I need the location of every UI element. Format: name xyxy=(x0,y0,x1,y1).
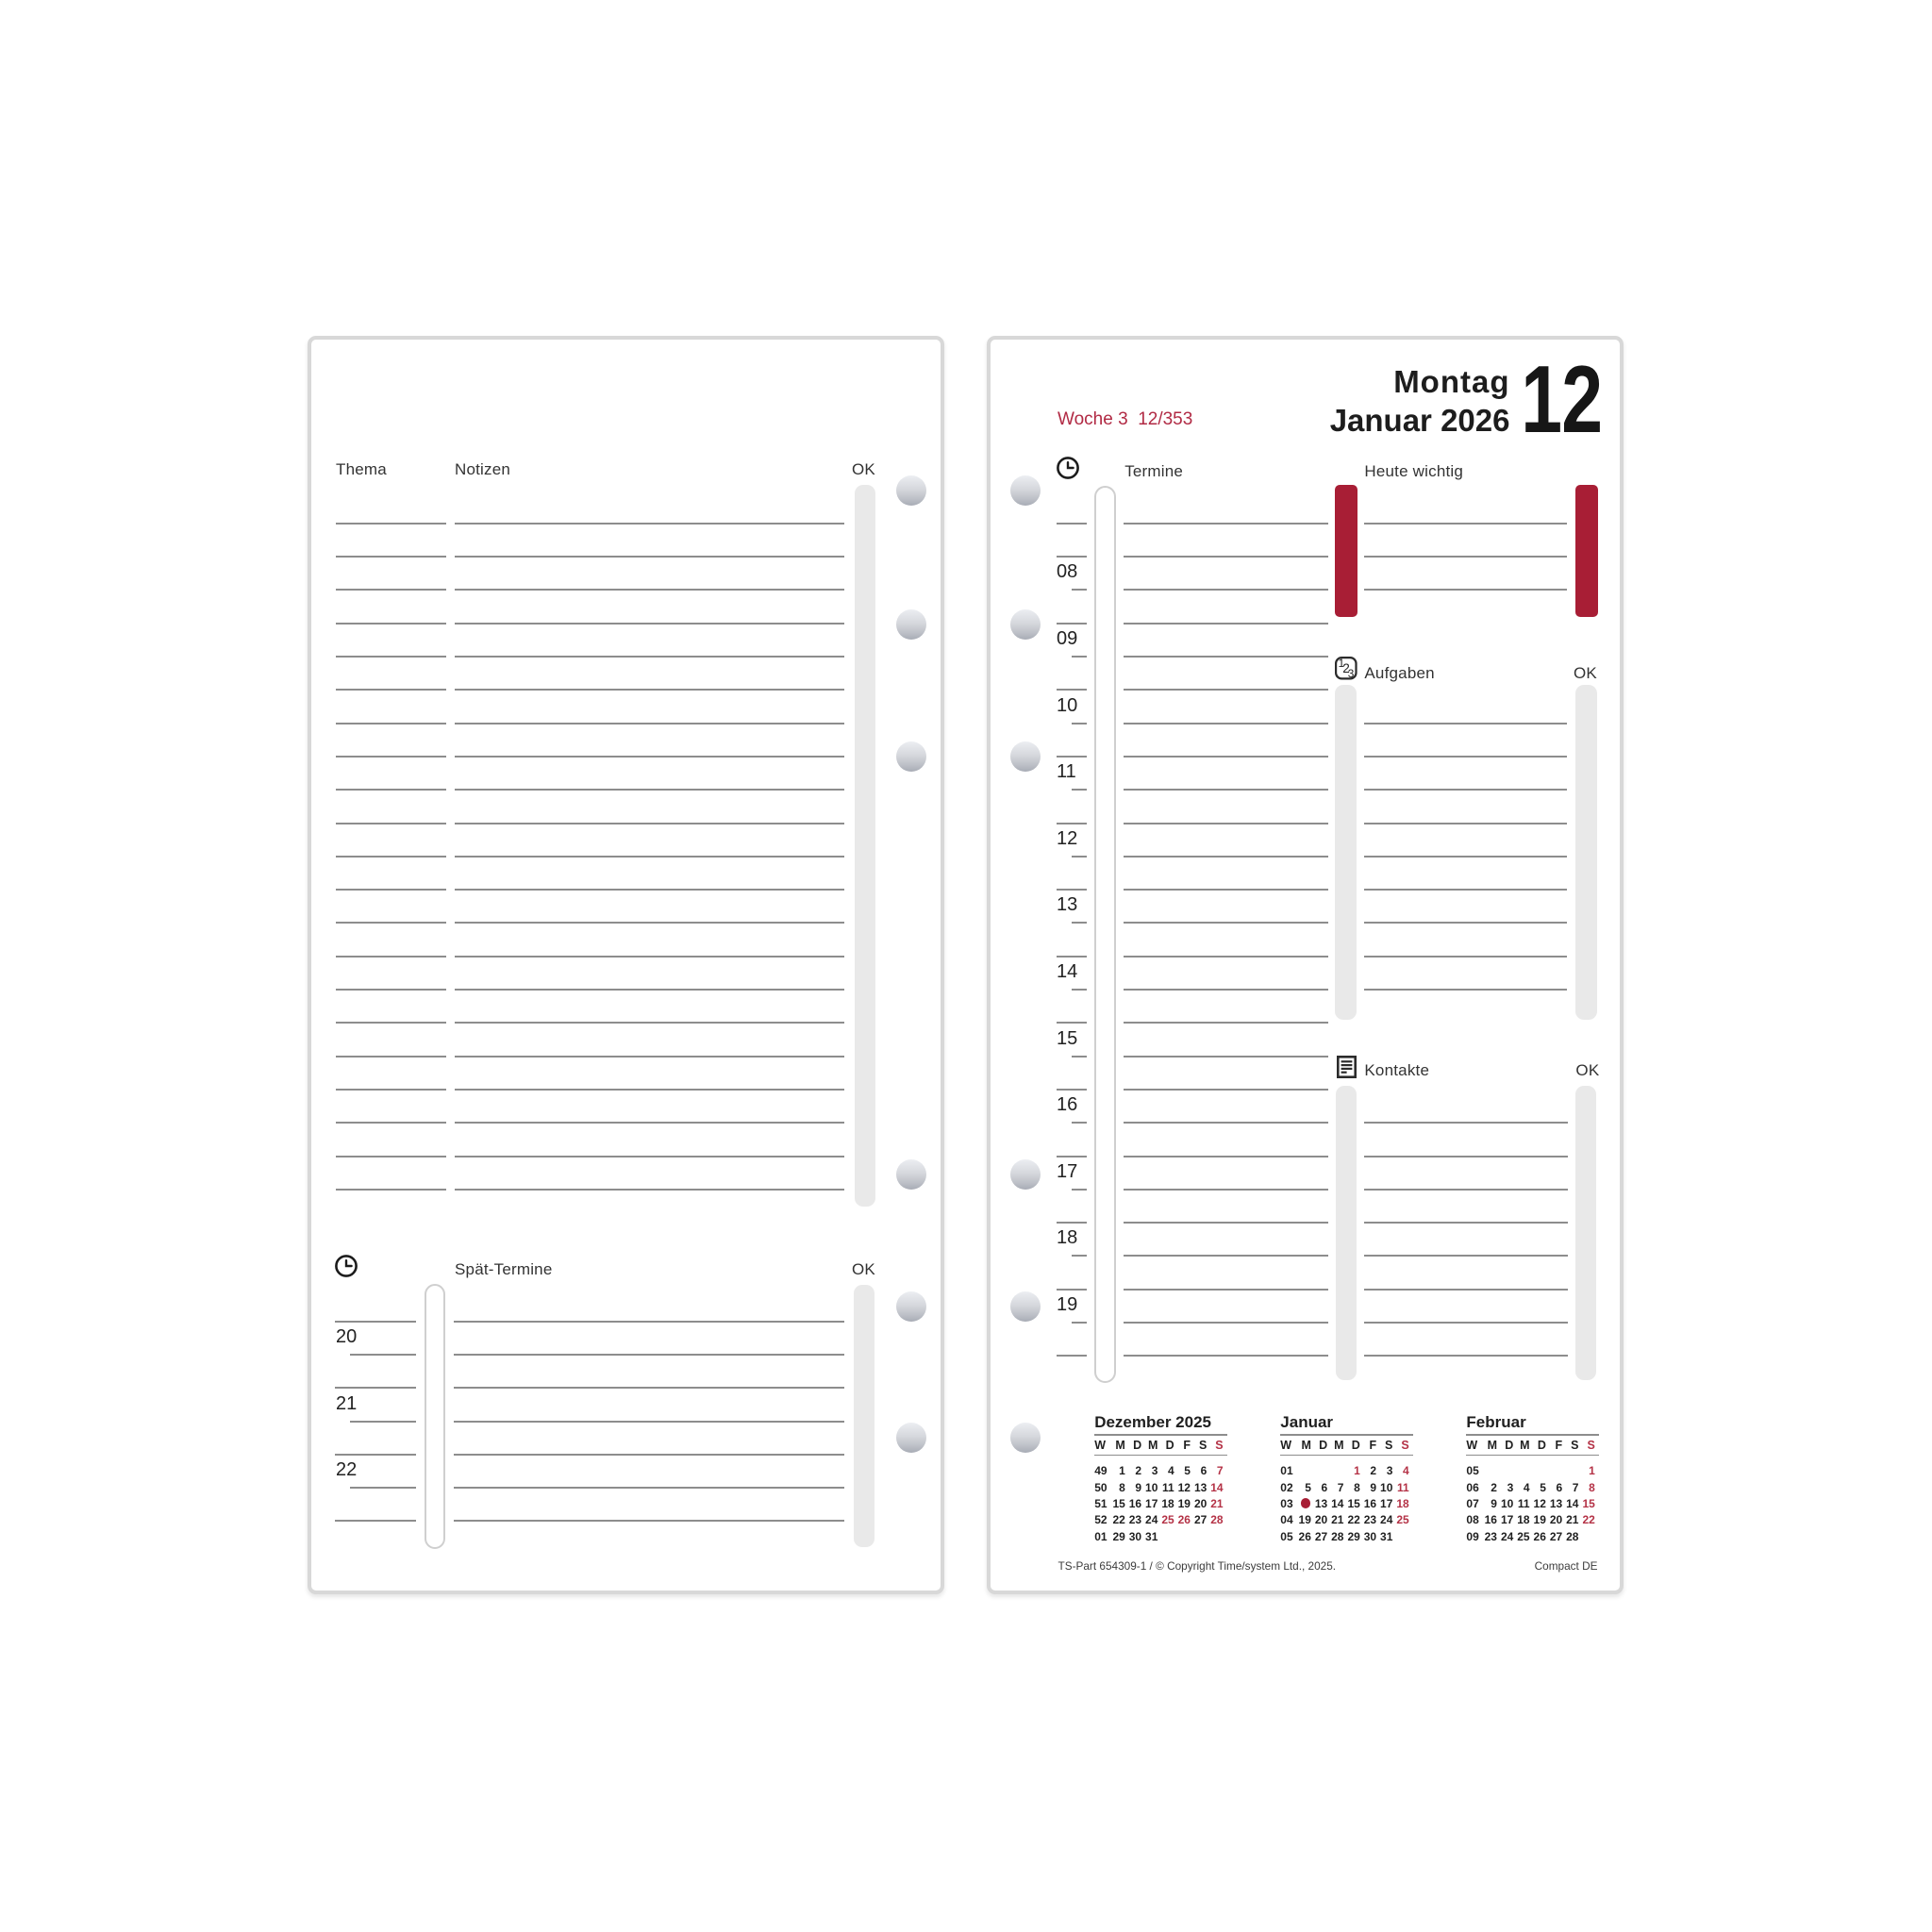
svg-text:3: 3 xyxy=(1348,667,1355,680)
